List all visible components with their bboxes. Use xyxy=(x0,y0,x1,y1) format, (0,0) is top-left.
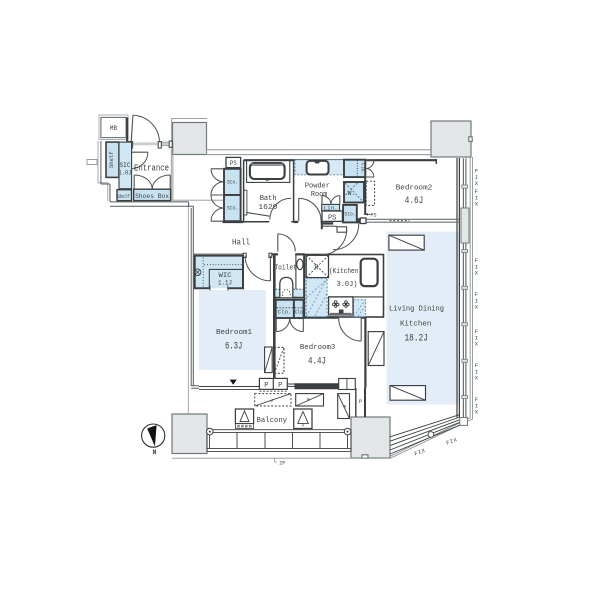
svg-text:(Kitchen: (Kitchen xyxy=(329,268,359,276)
svg-text:Clo: Clo xyxy=(295,310,303,316)
svg-text:Shelf: Shelf xyxy=(108,151,115,168)
svg-text:Clo.: Clo. xyxy=(359,163,366,174)
svg-text:3.0J): 3.0J) xyxy=(337,281,358,289)
svg-text:Sto.: Sto. xyxy=(227,205,238,212)
svg-text:Shelf: Shelf xyxy=(118,193,130,200)
svg-text:2F: 2F xyxy=(279,460,285,466)
svg-text:Living Dining: Living Dining xyxy=(389,305,444,313)
svg-text:Lin.: Lin. xyxy=(324,204,338,211)
svg-text:Bath: Bath xyxy=(260,195,277,203)
svg-text:Clo.: Clo. xyxy=(278,309,292,316)
svg-text:1620: 1620 xyxy=(258,204,278,212)
svg-text:PS: PS xyxy=(230,160,238,167)
svg-text:Bedroom3: Bedroom3 xyxy=(300,344,336,352)
svg-text:MB: MB xyxy=(110,125,118,132)
svg-text:PS: PS xyxy=(370,212,376,218)
svg-text:Powder: Powder xyxy=(305,183,330,191)
svg-text:WIC: WIC xyxy=(219,272,232,279)
svg-text:SIC: SIC xyxy=(120,162,131,169)
svg-text:1.0J: 1.0J xyxy=(119,170,132,177)
svg-text:Room: Room xyxy=(311,191,328,199)
svg-text:P: P xyxy=(278,382,282,390)
svg-text:Bedroom1: Bedroom1 xyxy=(216,329,252,337)
svg-text:4.6J: 4.6J xyxy=(405,196,424,207)
svg-text:P: P xyxy=(264,382,268,390)
svg-text:Sto.: Sto. xyxy=(345,211,356,218)
svg-text:Toilet: Toilet xyxy=(274,264,297,272)
svg-text:Sto.: Sto. xyxy=(227,179,238,186)
svg-text:Bedroom2: Bedroom2 xyxy=(396,184,433,192)
svg-text:Hall: Hall xyxy=(232,239,250,248)
svg-text:Kitchen: Kitchen xyxy=(400,320,432,328)
svg-text:P: P xyxy=(359,398,362,405)
svg-text:R: R xyxy=(314,265,319,273)
svg-text:Shoes Box: Shoes Box xyxy=(135,193,169,200)
svg-text:N: N xyxy=(153,449,157,456)
svg-text:6.3J: 6.3J xyxy=(225,341,243,352)
svg-text:Balcony: Balcony xyxy=(257,417,288,425)
svg-text:18.2J: 18.2J xyxy=(404,333,428,344)
svg-text:Entrance: Entrance xyxy=(134,163,169,174)
svg-text:W.: W. xyxy=(348,190,356,197)
svg-text:A: A xyxy=(302,422,305,428)
svg-text:PS: PS xyxy=(328,214,336,222)
svg-text:4.4J: 4.4J xyxy=(308,356,326,367)
svg-text:1.1J: 1.1J xyxy=(218,280,232,287)
